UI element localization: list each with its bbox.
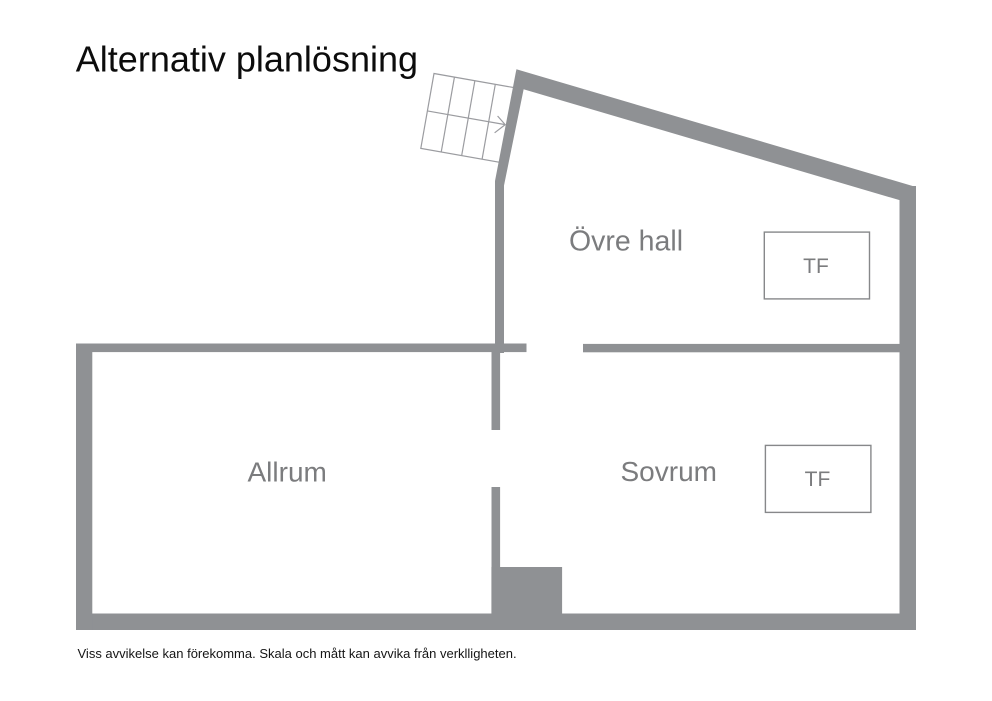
svg-text:TF: TF [803,255,829,278]
svg-text:Allrum: Allrum [248,457,327,488]
svg-text:Sovrum: Sovrum [621,456,717,487]
svg-text:Viss avvikelse kan förekomma.: Viss avvikelse kan förekomma. Skala och … [78,646,517,661]
svg-text:Alternativ planlösning: Alternativ planlösning [76,39,418,80]
svg-text:TF: TF [805,468,831,491]
svg-text:Övre hall: Övre hall [569,226,683,258]
